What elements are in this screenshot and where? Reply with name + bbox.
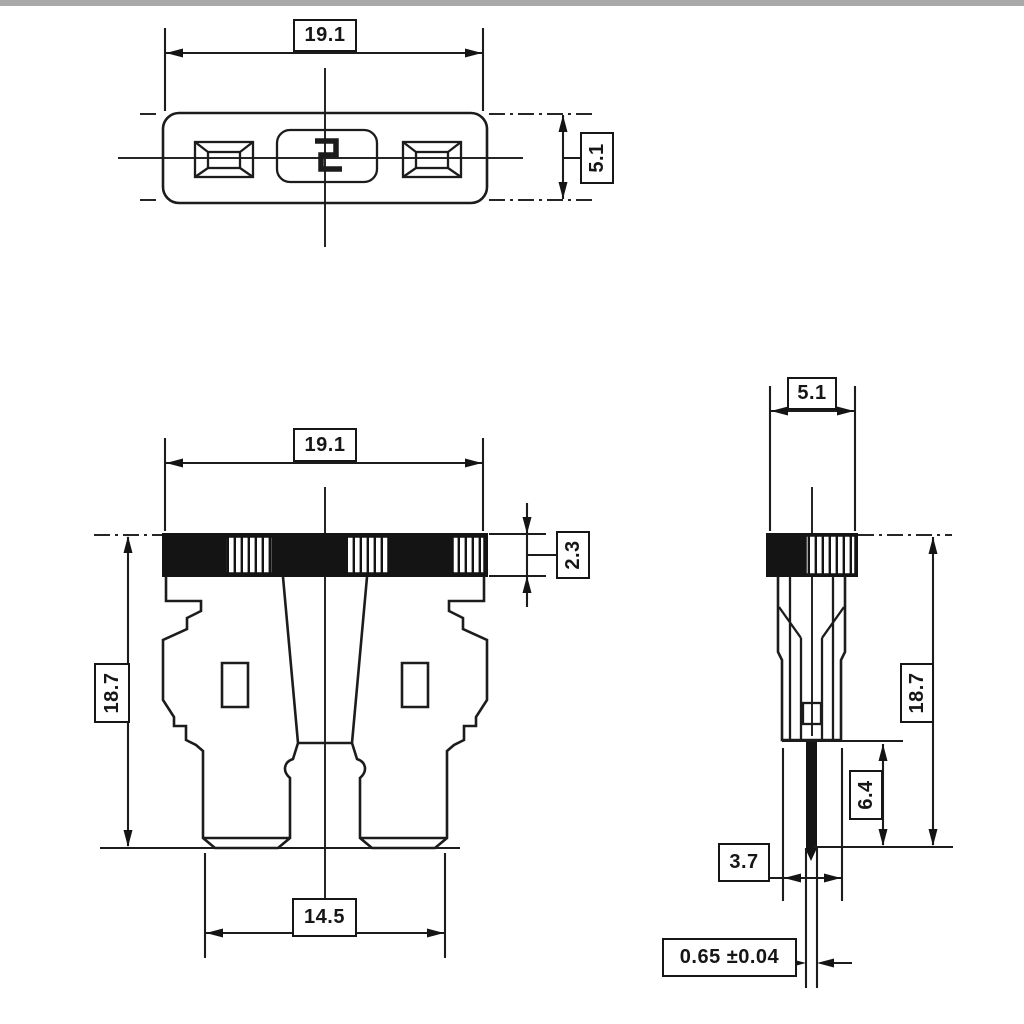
dim-front-cap-lines: [489, 503, 556, 607]
dim-label-front-cap-height: 2.3: [556, 531, 590, 579]
dim-label-side-thickness: 5.1: [787, 377, 837, 410]
dim-label-front-width: 19.1: [293, 428, 357, 462]
dim-front-height-lines: [94, 535, 460, 848]
fuse-element-mark: [315, 141, 342, 169]
dim-label-top-thickness: 5.1: [580, 132, 614, 184]
fuse-cap-band: [163, 534, 487, 576]
dim-label-side-height: 18.7: [900, 663, 934, 723]
dim-label-top-width: 19.1: [293, 19, 357, 52]
dim-top-thickness-lines: [559, 115, 581, 199]
terminal-blade-side: [805, 740, 817, 988]
dim-label-side-bottom-width: 3.7: [718, 843, 770, 882]
dim-label-side-terminal-length: 6.4: [849, 770, 883, 820]
dim-label-side-terminal-thickness: 0.65 ±0.04: [662, 938, 797, 977]
technical-drawing-page: 19.1 5.1 19.1 18.7 2.3 14.5 5.1 18.7 6.4…: [0, 0, 1024, 1024]
top-view-center-window: [277, 130, 377, 182]
dim-label-front-terminal-span: 14.5: [292, 898, 357, 937]
technical-drawing-canvas: [0, 0, 1024, 1024]
top-view-right-slot: [403, 142, 461, 177]
dim-side-terminal-thickness-lines: [788, 959, 852, 968]
front-view-linework: [163, 487, 487, 920]
side-view-linework: [767, 487, 857, 988]
top-view-linework: [118, 68, 593, 247]
top-view-left-slot: [195, 142, 253, 177]
dim-label-front-height: 18.7: [94, 663, 130, 723]
